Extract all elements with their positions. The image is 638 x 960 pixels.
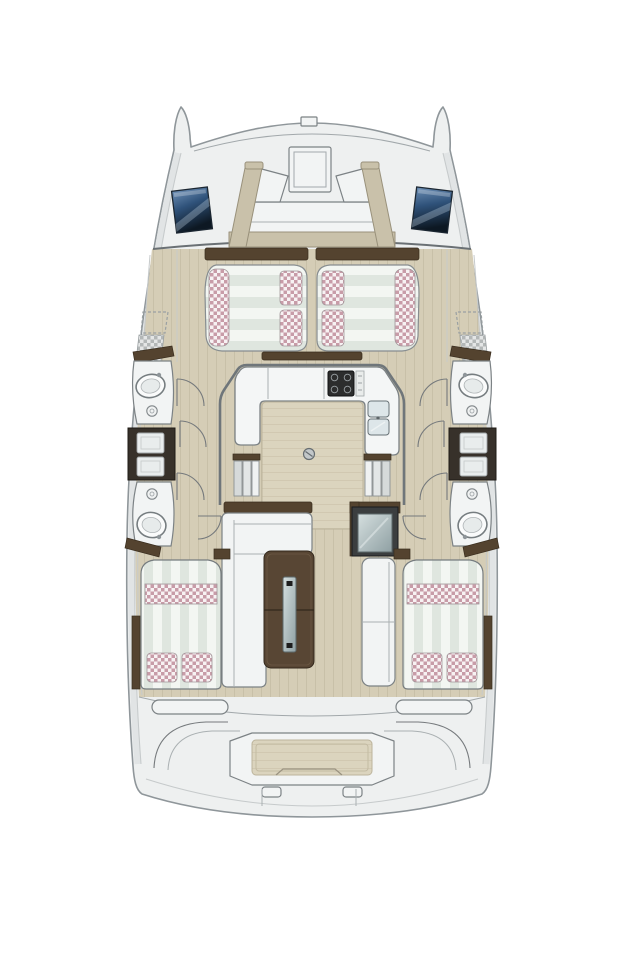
sunpad-foot-trim <box>262 352 362 360</box>
faucet-forward-port <box>157 373 161 377</box>
toilet-forward-starboard <box>467 406 477 416</box>
stove-cooktop <box>328 371 364 396</box>
transom-step-port <box>152 700 228 714</box>
mast-fitting <box>301 117 317 126</box>
sunpad-headboard-starboard <box>316 248 419 260</box>
table-center-insert <box>283 577 296 652</box>
faucet-aft-port <box>157 535 161 539</box>
floor-plan-canvas <box>0 0 638 960</box>
deck-window-starboard <box>412 187 453 233</box>
sunpad-headboard-port <box>205 248 308 260</box>
cockpit-backrest-aft <box>229 232 395 247</box>
sunpad-pillow <box>280 310 302 346</box>
catamaran-floor-plan <box>0 0 638 960</box>
cabin-trim-port <box>132 616 140 689</box>
deck-drain <box>304 449 315 460</box>
sunpad-pillow <box>322 310 344 346</box>
backrest-cap-starboard <box>361 162 379 169</box>
cabin-trim-starboard <box>484 616 492 689</box>
backrest-cap-port <box>245 162 263 169</box>
toilet-forward-port <box>147 406 157 416</box>
sunpad-accent-band-starboard <box>395 269 415 346</box>
transom-tab-starboard <box>343 787 362 797</box>
salon-table <box>264 551 314 668</box>
nav-bench <box>362 558 395 686</box>
transom-tab-port <box>262 787 281 797</box>
faucet-forward-starboard <box>463 373 467 377</box>
cabin-wall-stub-port <box>214 549 230 559</box>
deck-window-port <box>172 187 213 233</box>
companionway-starboard <box>364 454 391 496</box>
berth-pillow <box>182 653 212 682</box>
toilet-aft-starboard <box>467 489 477 499</box>
vanity-cabinet-starboard <box>449 428 496 480</box>
berth-accent-band-starboard <box>407 584 479 604</box>
vanity-cabinet-port <box>128 428 175 480</box>
center-step-pad <box>252 740 372 775</box>
sunpad-accent-band-port <box>209 269 229 346</box>
transom-step-starboard <box>396 700 472 714</box>
berth-pillow <box>412 653 442 682</box>
sunpad-pillow <box>322 271 344 305</box>
faucet-aft-starboard <box>463 535 467 539</box>
sunpad-pillow <box>280 271 302 305</box>
sofa-back-trim <box>224 502 312 513</box>
cooler-unit <box>350 502 400 556</box>
foredeck-hatch <box>289 147 331 192</box>
berth-pillow <box>447 653 477 682</box>
companionway-port <box>233 454 260 496</box>
toilet-aft-port <box>147 489 157 499</box>
dinette <box>198 502 426 687</box>
berth-accent-band-port <box>145 584 217 604</box>
cabin-wall-stub-starboard <box>394 549 410 559</box>
berth-pillow <box>147 653 177 682</box>
